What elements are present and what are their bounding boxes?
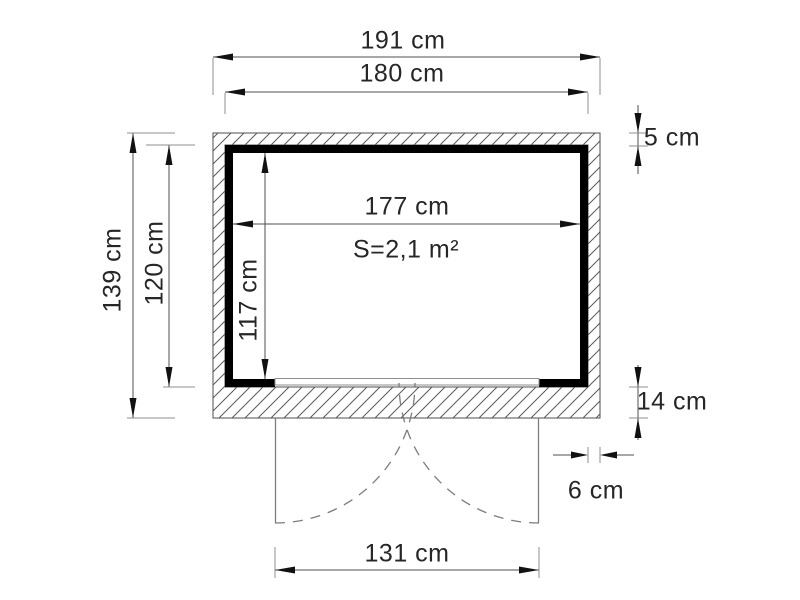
dim-side-wall-label: 6 cm: [568, 479, 624, 504]
dim-inner-width-label: 177 cm: [365, 195, 450, 220]
floor-area-label: S=2,1 m²: [353, 238, 459, 263]
dim-inner-depth-label: 117 cm: [237, 258, 262, 341]
floor-plan-diagram: 191 cm 180 cm 177 cm S=2,1 m² 139 cm 120…: [0, 0, 800, 600]
dim-top-wall-label: 5 cm: [644, 126, 700, 151]
door-leaves: [276, 418, 539, 523]
dim-front-wall-label: 14 cm: [637, 390, 708, 415]
hatched-wall-band: [213, 133, 600, 418]
dim-door-width-label: 131 cm: [365, 542, 450, 567]
dim-outer-width-label: 191 cm: [361, 29, 446, 54]
wall-outline: [225, 145, 588, 387]
dim-body-depth-label: 120 cm: [143, 221, 168, 306]
dimension-arrowheads: [130, 54, 642, 574]
door-threshold: [275, 379, 539, 386]
dim-outer-depth-label: 139 cm: [101, 228, 126, 313]
dim-body-width-label: 180 cm: [360, 62, 445, 87]
